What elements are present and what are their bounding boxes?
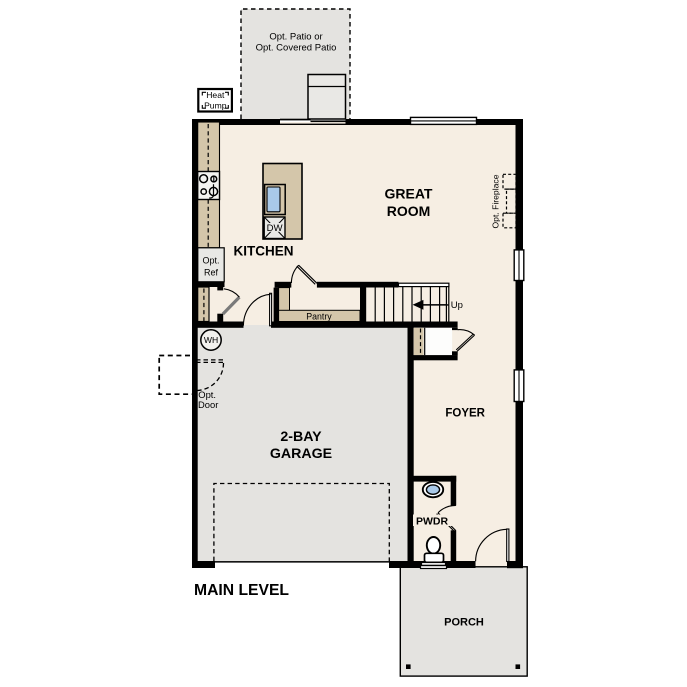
svg-text:Heat: Heat — [206, 90, 225, 100]
svg-text:Opt. Covered Patio: Opt. Covered Patio — [256, 43, 337, 54]
svg-text:Door: Door — [198, 399, 218, 410]
svg-text:2-BAY: 2-BAY — [280, 429, 322, 445]
svg-text:Opt. Fireplace: Opt. Fireplace — [491, 174, 501, 228]
svg-text:PWDR: PWDR — [416, 516, 448, 528]
svg-text:MAIN LEVEL: MAIN LEVEL — [194, 582, 289, 599]
svg-text:Ref: Ref — [204, 267, 219, 277]
svg-text:Opt.: Opt. — [202, 255, 219, 265]
svg-text:DW: DW — [267, 223, 284, 234]
svg-text:Up: Up — [451, 300, 463, 311]
svg-text:KITCHEN: KITCHEN — [234, 244, 294, 259]
svg-text:GREAT: GREAT — [385, 185, 433, 201]
svg-text:Pantry: Pantry — [306, 311, 332, 321]
svg-text:PORCH: PORCH — [444, 617, 484, 629]
svg-text:Pump: Pump — [204, 100, 227, 110]
svg-text:GARAGE: GARAGE — [270, 446, 332, 462]
svg-text:ROOM: ROOM — [387, 203, 431, 219]
svg-text:FOYER: FOYER — [445, 408, 485, 420]
svg-text:Opt. Patio or: Opt. Patio or — [269, 32, 322, 43]
svg-text:WH: WH — [204, 335, 218, 345]
